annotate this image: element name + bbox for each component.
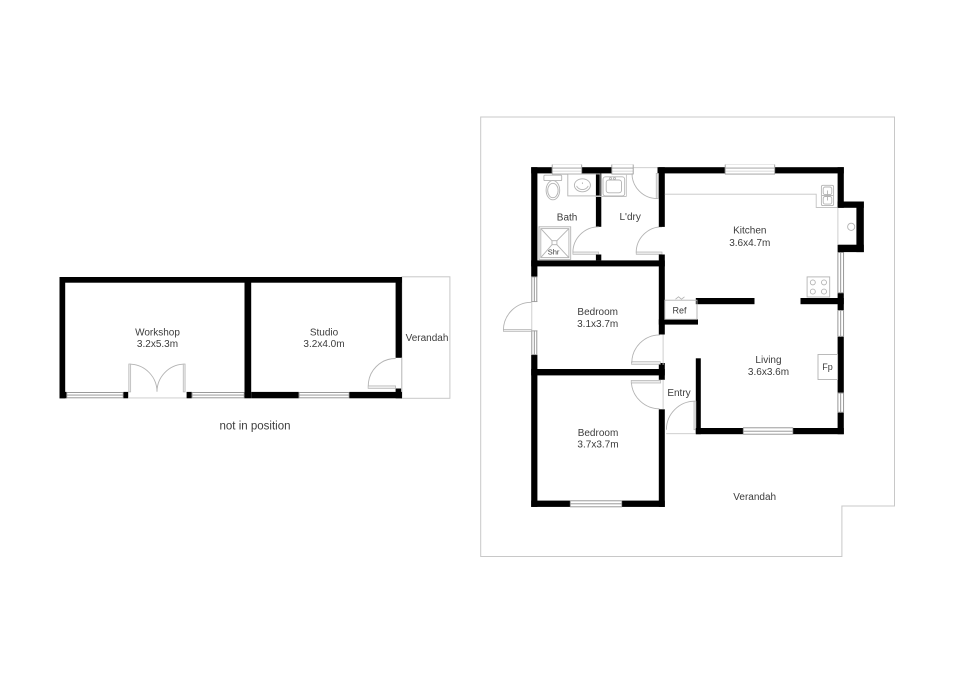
svg-text:3.6x3.6m: 3.6x3.6m <box>748 367 789 378</box>
svg-text:not in position: not in position <box>220 421 291 433</box>
svg-text:Verandah: Verandah <box>406 333 449 344</box>
svg-text:Bath: Bath <box>557 213 578 224</box>
svg-text:3.6x4.7m: 3.6x4.7m <box>729 238 770 249</box>
svg-text:3.1x3.7m: 3.1x3.7m <box>577 319 618 330</box>
svg-text:Living: Living <box>755 355 781 366</box>
svg-text:3.2x4.0m: 3.2x4.0m <box>303 339 344 350</box>
svg-text:3.7x3.7m: 3.7x3.7m <box>577 440 618 451</box>
svg-text:Kitchen: Kitchen <box>733 226 766 237</box>
svg-text:Bedroom: Bedroom <box>578 428 619 439</box>
svg-text:L'dry: L'dry <box>620 212 641 223</box>
svg-text:Bedroom: Bedroom <box>577 307 618 318</box>
svg-text:Entry: Entry <box>667 388 690 399</box>
svg-text:Studio: Studio <box>310 328 339 339</box>
svg-text:Workshop: Workshop <box>135 328 180 339</box>
svg-text:Fp: Fp <box>822 362 833 372</box>
svg-text:3.2x5.3m: 3.2x5.3m <box>137 339 178 350</box>
svg-text:Shr: Shr <box>548 248 560 257</box>
svg-text:Ref: Ref <box>672 306 687 316</box>
svg-text:Verandah: Verandah <box>733 492 776 503</box>
